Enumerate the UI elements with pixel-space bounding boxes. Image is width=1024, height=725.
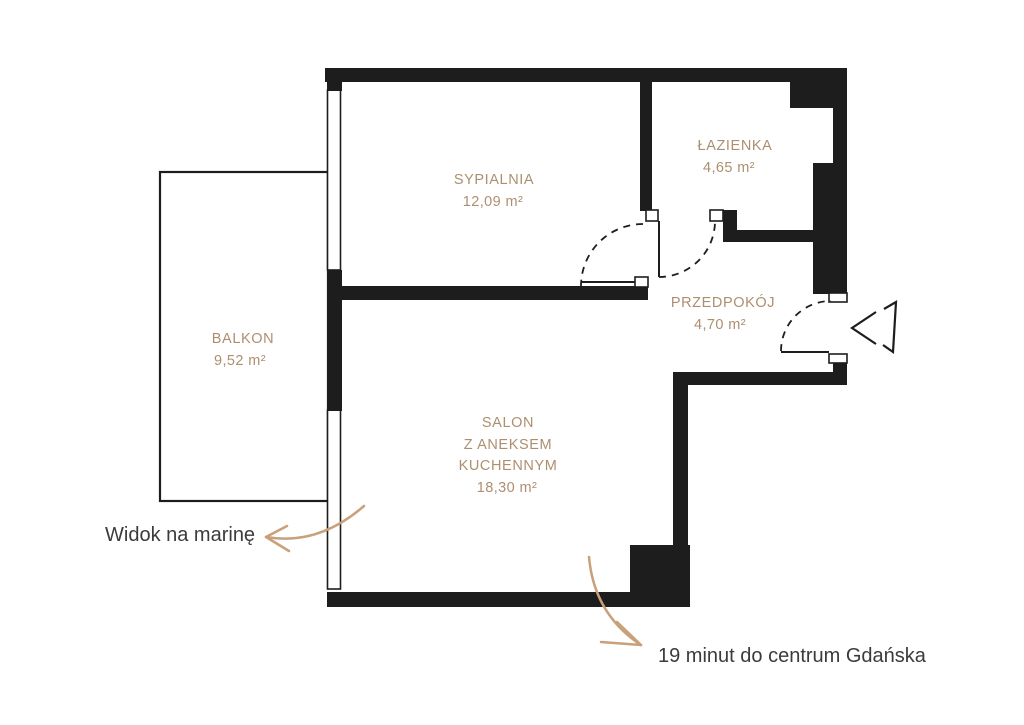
door-swing-bedroom — [581, 224, 643, 286]
wall-bath-corner-block — [790, 82, 833, 108]
window-bedroom — [328, 90, 341, 270]
window-livingroom — [328, 410, 341, 589]
door-swing-entry — [781, 301, 831, 351]
entrance-arrow-chevron — [852, 312, 876, 344]
wall-livingroom-right — [673, 372, 688, 597]
room-labels: SYPIALNIA 12,09 m² ŁAZIENKA 4,65 m² PRZE… — [212, 138, 775, 496]
jamb-entry-top — [829, 293, 847, 302]
jamb-bath-right — [710, 210, 723, 221]
marina-arrow-curve — [266, 506, 364, 539]
room-label-balkon: BALKON — [212, 331, 274, 347]
room-label-sypialnia: SYPIALNIA — [454, 172, 534, 188]
wall-right-upper — [833, 68, 847, 294]
room-label-przedpokoj: PRZEDPOKÓJ — [671, 294, 775, 311]
wall-bath-left — [640, 82, 652, 211]
room-area-lazienka: 4,65 m² — [703, 160, 755, 176]
wall-left-mid — [327, 270, 342, 411]
room-area-przedpokoj: 4,70 m² — [694, 317, 746, 333]
floor-plan-page: SYPIALNIA 12,09 m² ŁAZIENKA 4,65 m² PRZE… — [0, 0, 1024, 725]
room-area-balkon: 9,52 m² — [214, 353, 266, 369]
wall-left-stub — [327, 82, 342, 91]
wall-bath-right-column — [813, 163, 833, 294]
gdansk-annotation: 19 minut do centrum Gdańska — [658, 645, 927, 667]
wall-bedroom-bottom — [341, 286, 648, 300]
wall-top — [325, 68, 847, 82]
room-label-salon-line2: Z ANEKSEM — [464, 437, 552, 453]
door-swing-bathroom — [659, 221, 715, 277]
jamb-bath-left — [646, 210, 658, 221]
jamb-entry-bottom — [829, 354, 847, 363]
room-label-salon-line1: SALON — [482, 415, 534, 431]
jamb-bedroom — [635, 277, 648, 287]
room-label-lazienka: ŁAZIENKA — [698, 138, 773, 154]
entrance-arrow-icon — [852, 302, 896, 352]
marina-arrow-icon — [266, 506, 364, 551]
floor-plan-drawing: SYPIALNIA 12,09 m² ŁAZIENKA 4,65 m² PRZE… — [0, 0, 1024, 725]
room-area-salon: 18,30 m² — [477, 480, 537, 496]
room-label-salon-line3: KUCHENNYM — [459, 458, 558, 474]
entrance-arrow-bracket — [883, 302, 896, 352]
wall-bath-door-stub — [723, 210, 737, 235]
room-area-sypialnia: 12,09 m² — [463, 194, 523, 210]
wall-hall-bottom — [673, 372, 847, 385]
marina-annotation: Widok na marinę — [105, 524, 255, 546]
